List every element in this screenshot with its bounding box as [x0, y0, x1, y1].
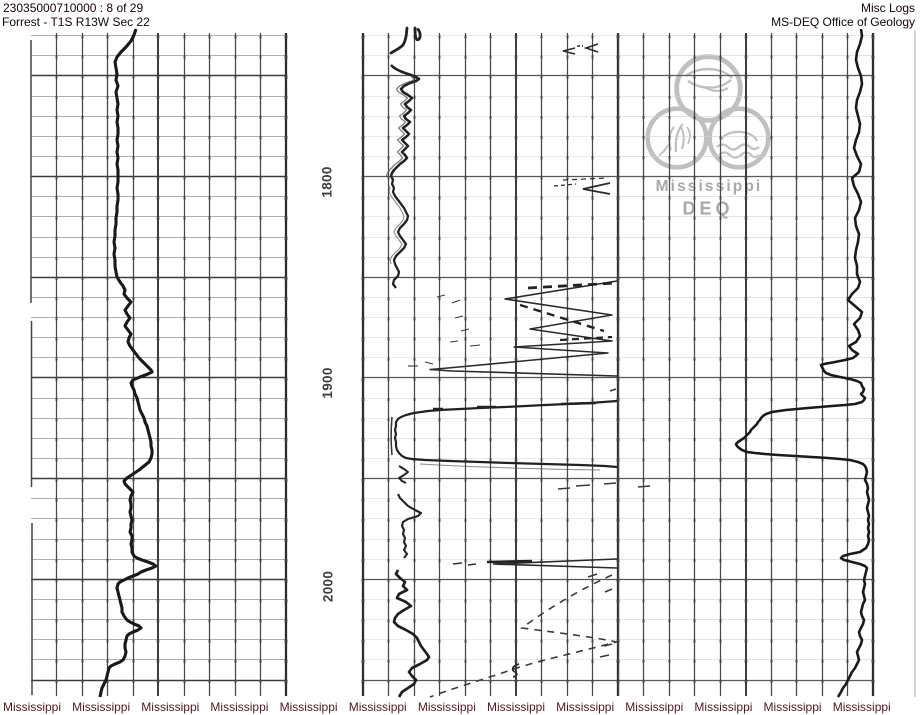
- svg-text:DEQ: DEQ: [682, 199, 733, 219]
- svg-text:1900: 1900: [320, 367, 335, 398]
- svg-text:2000: 2000: [321, 571, 336, 602]
- svg-text:1800: 1800: [320, 166, 335, 197]
